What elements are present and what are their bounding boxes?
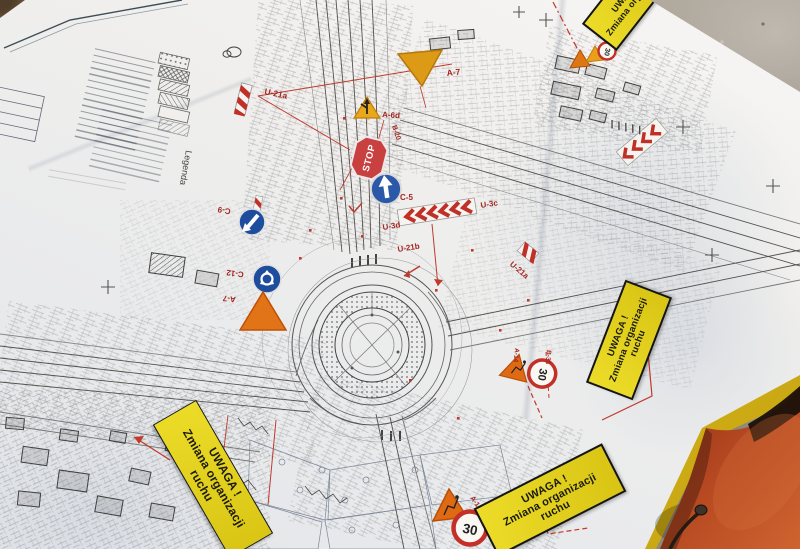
photo-traffic-plan-on-concrete: Legenda <box>0 0 800 549</box>
orange-fabric-object <box>0 0 800 549</box>
cord-toggle <box>695 505 707 515</box>
